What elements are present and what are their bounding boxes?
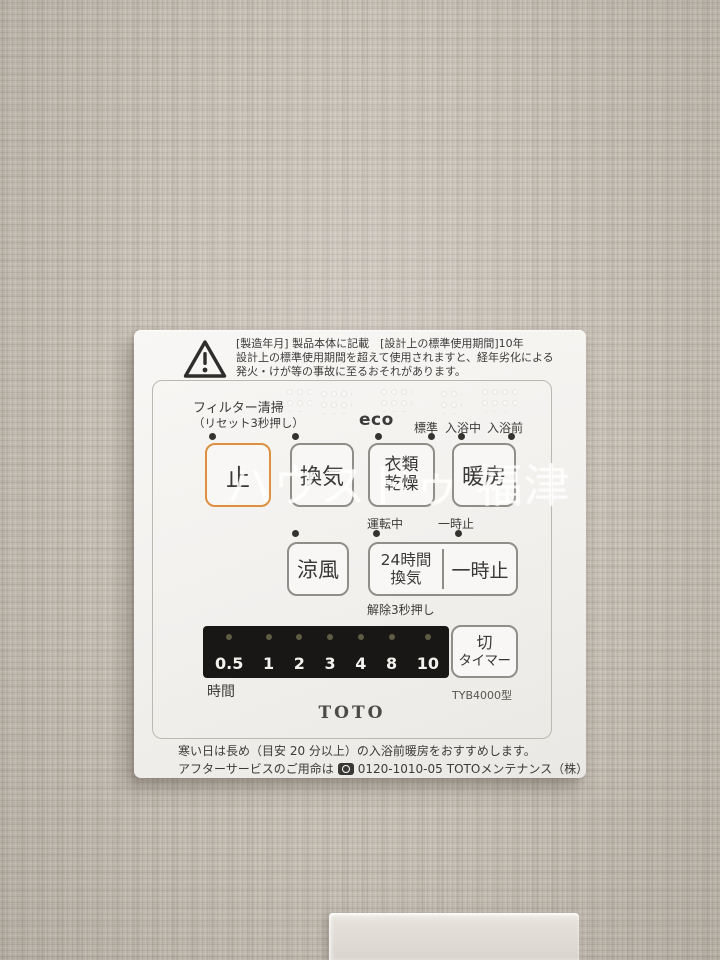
pre-bath-label: 入浴前 <box>487 419 523 436</box>
timer-value: 3 <box>324 654 335 674</box>
vent24-label-line1: 24時間 <box>381 551 432 569</box>
timer-led <box>226 634 232 640</box>
timer-led <box>389 634 395 640</box>
eco-label: eco <box>359 410 394 430</box>
warning-triangle-icon <box>183 339 227 379</box>
filter-clean-text: フィルター清掃 <box>193 401 304 416</box>
running-led <box>373 530 380 537</box>
vent24-label-line2: 換気 <box>390 569 421 587</box>
timer-value: 2 <box>294 654 305 674</box>
filter-reset-text: （リセット3秒押し） <box>193 416 304 431</box>
footer-service-suffix: TOTOメンテナンス（株） <box>447 760 588 777</box>
timer-led <box>266 634 272 640</box>
timer-step: 8 <box>386 631 397 674</box>
braille-dots <box>481 388 517 412</box>
cancel-hint-label: 解除3秒押し <box>367 601 435 618</box>
cool-breeze-led <box>292 530 299 537</box>
pause-button[interactable]: 一時止 <box>444 544 516 594</box>
bathing-led <box>458 433 465 440</box>
timer-value: 10 <box>417 654 439 674</box>
timer-display: 0.5 1 2 3 4 8 <box>203 626 449 678</box>
off-timer-label-line1: 切 <box>476 634 492 652</box>
timer-step: 4 <box>355 631 366 674</box>
model-number: TYB4000型 <box>452 687 512 703</box>
pause-button-label: 一時止 <box>451 556 508 583</box>
ventilation-led <box>292 433 299 440</box>
warning-text: [製造年月] 製品本体に記載 [設計上の標準使用期間]10年 設計上の標準使用期… <box>236 337 566 379</box>
warning-line2: 設計上の標準使用期間を超えて使用されますと、経年劣化による <box>236 351 566 365</box>
filter-led <box>209 433 216 440</box>
cool-breeze-button[interactable]: 涼風 <box>287 542 349 596</box>
footer-service-prefix: アフターサービスのご用命は <box>178 760 334 777</box>
eco-led <box>375 433 382 440</box>
timer-led <box>425 634 431 640</box>
timer-value: 0.5 <box>215 654 243 674</box>
braille-dots <box>320 390 352 414</box>
hours-label: 時間 <box>207 681 235 701</box>
freedial-phone-icon <box>338 763 354 775</box>
timer-step: 0.5 <box>215 631 243 674</box>
vent24-pause-button-group: 24時間 換気 一時止 <box>368 542 518 596</box>
off-timer-button[interactable]: 切 タイマー <box>451 625 518 678</box>
standard-label: 標準 <box>414 419 438 436</box>
standard-led <box>428 433 435 440</box>
braille-dots <box>380 388 412 412</box>
bathroom-control-panel: [製造年月] 製品本体に記載 [設計上の標準使用期間]10年 設計上の標準使用期… <box>134 330 586 778</box>
pre-bath-led <box>508 433 515 440</box>
agency-watermark: ハウスドゥ 福津 <box>226 450 571 516</box>
filter-clean-label: フィルター清掃 （リセット3秒押し） <box>193 401 304 431</box>
off-timer-label-line2: タイマー <box>459 652 511 670</box>
timer-led <box>358 634 364 640</box>
timer-step: 10 <box>417 631 439 674</box>
toto-logo: TOTO <box>153 703 551 723</box>
timer-value: 1 <box>263 654 274 674</box>
warning-line3: 発火・けが等の事故に至るおそれがあります。 <box>236 365 566 379</box>
control-panel-area: フィルター清掃 （リセット3秒押し） eco 標準 入浴中 入浴前 止 換気 衣… <box>152 380 552 739</box>
timer-value: 4 <box>355 654 366 674</box>
timer-step: 2 <box>294 631 305 674</box>
timer-led <box>327 634 333 640</box>
cool-breeze-button-label: 涼風 <box>297 554 339 584</box>
service-phone-number: 0120-1010-05 <box>358 762 443 776</box>
running-label: 運転中 <box>367 515 403 532</box>
footer-service-text: アフターサービスのご用命は 0120-1010-05 TOTOメンテナンス（株） <box>178 760 588 777</box>
timer-led <box>296 634 302 640</box>
timer-step: 1 <box>263 631 274 674</box>
vent24-button[interactable]: 24時間 換気 <box>370 544 442 594</box>
braille-dots <box>440 390 462 414</box>
timer-step: 3 <box>324 631 335 674</box>
pause-led <box>455 530 462 537</box>
footer-advice-text: 寒い日は長め（目安 20 分以上）の入浴前暖房をおすすめします。 <box>178 742 536 759</box>
wall-switch-plate <box>329 913 579 960</box>
timer-value: 8 <box>386 654 397 674</box>
warning-line1: [製造年月] 製品本体に記載 [設計上の標準使用期間]10年 <box>236 337 566 351</box>
